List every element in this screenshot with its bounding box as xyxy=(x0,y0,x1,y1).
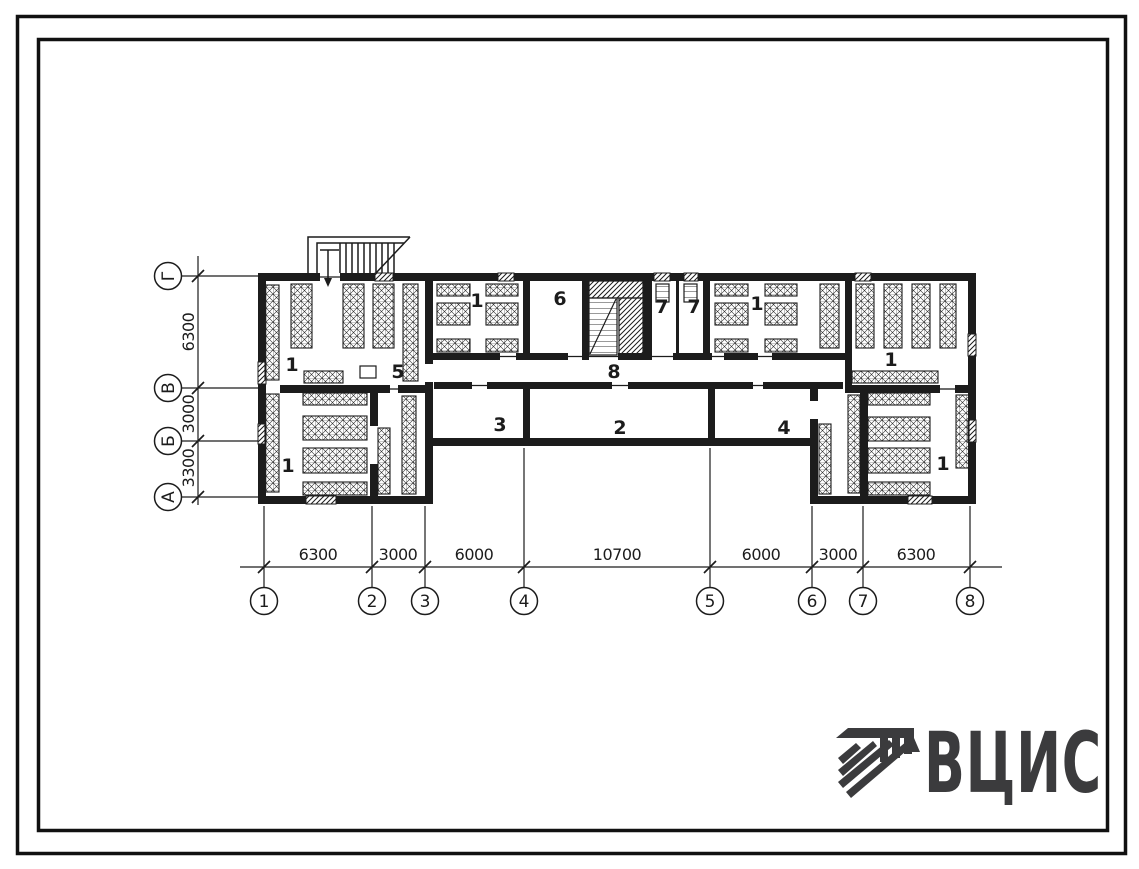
room-label: 1 xyxy=(281,455,294,477)
axis-column-label: 1 xyxy=(259,592,270,612)
axis-column-label: 3 xyxy=(420,592,431,612)
room-label: 1 xyxy=(750,293,763,315)
dim-label: 6000 xyxy=(455,545,494,564)
room-label: 4 xyxy=(777,417,790,439)
stairwell xyxy=(589,281,643,355)
room-label: 1 xyxy=(285,354,298,376)
room-label: 8 xyxy=(607,361,620,383)
floor-plan-drawing: 1 5 1 1 6 8 7 7 1 3 2 4 1 1 6300 3000 60… xyxy=(0,0,1139,869)
dim-label: 3000 xyxy=(379,545,418,564)
drawing-sheet: 1 5 1 1 6 8 7 7 1 3 2 4 1 1 6300 3000 60… xyxy=(0,0,1139,869)
room-label: 1 xyxy=(936,453,949,475)
table-symbol xyxy=(360,366,376,378)
logo-mark-icon xyxy=(836,728,920,798)
axis-column-label: 5 xyxy=(705,592,716,612)
axis-column-label: 4 xyxy=(519,592,530,612)
axis-column-label: 2 xyxy=(367,592,378,612)
logo: ВЦИС xyxy=(836,715,1102,813)
room-label: 3 xyxy=(493,414,506,436)
dim-label: 6000 xyxy=(742,545,781,564)
dim-label: 3300 xyxy=(179,448,198,487)
axis-column-label: 7 xyxy=(858,592,869,612)
axis-column-label: 8 xyxy=(965,592,976,612)
room-label: 6 xyxy=(553,288,566,310)
room-label: 7 xyxy=(655,296,668,318)
dim-label: 6300 xyxy=(897,545,936,564)
dim-label: 6300 xyxy=(299,545,338,564)
room-label: 1 xyxy=(470,290,483,312)
dim-label: 10700 xyxy=(593,545,642,564)
axis-row-label: В xyxy=(159,382,179,394)
axis-row-label: Б xyxy=(159,435,179,447)
room-label: 7 xyxy=(687,296,700,318)
logo-text: ВЦИС xyxy=(924,715,1102,813)
room-label: 5 xyxy=(391,361,404,383)
room-label: 1 xyxy=(884,349,897,371)
axis-row-label: Г xyxy=(159,271,179,281)
axis-column-label: 6 xyxy=(807,592,818,612)
dimension-column-left: 6300 3000 3300 Г В Б А xyxy=(155,256,259,511)
room-label: 2 xyxy=(613,417,626,439)
dim-label: 6300 xyxy=(179,312,198,351)
dim-label: 3000 xyxy=(179,394,198,433)
axis-row-label: А xyxy=(159,491,179,503)
stair-direction-arrow xyxy=(324,278,332,287)
dim-label: 3000 xyxy=(819,545,858,564)
inner-frame xyxy=(39,40,1108,831)
